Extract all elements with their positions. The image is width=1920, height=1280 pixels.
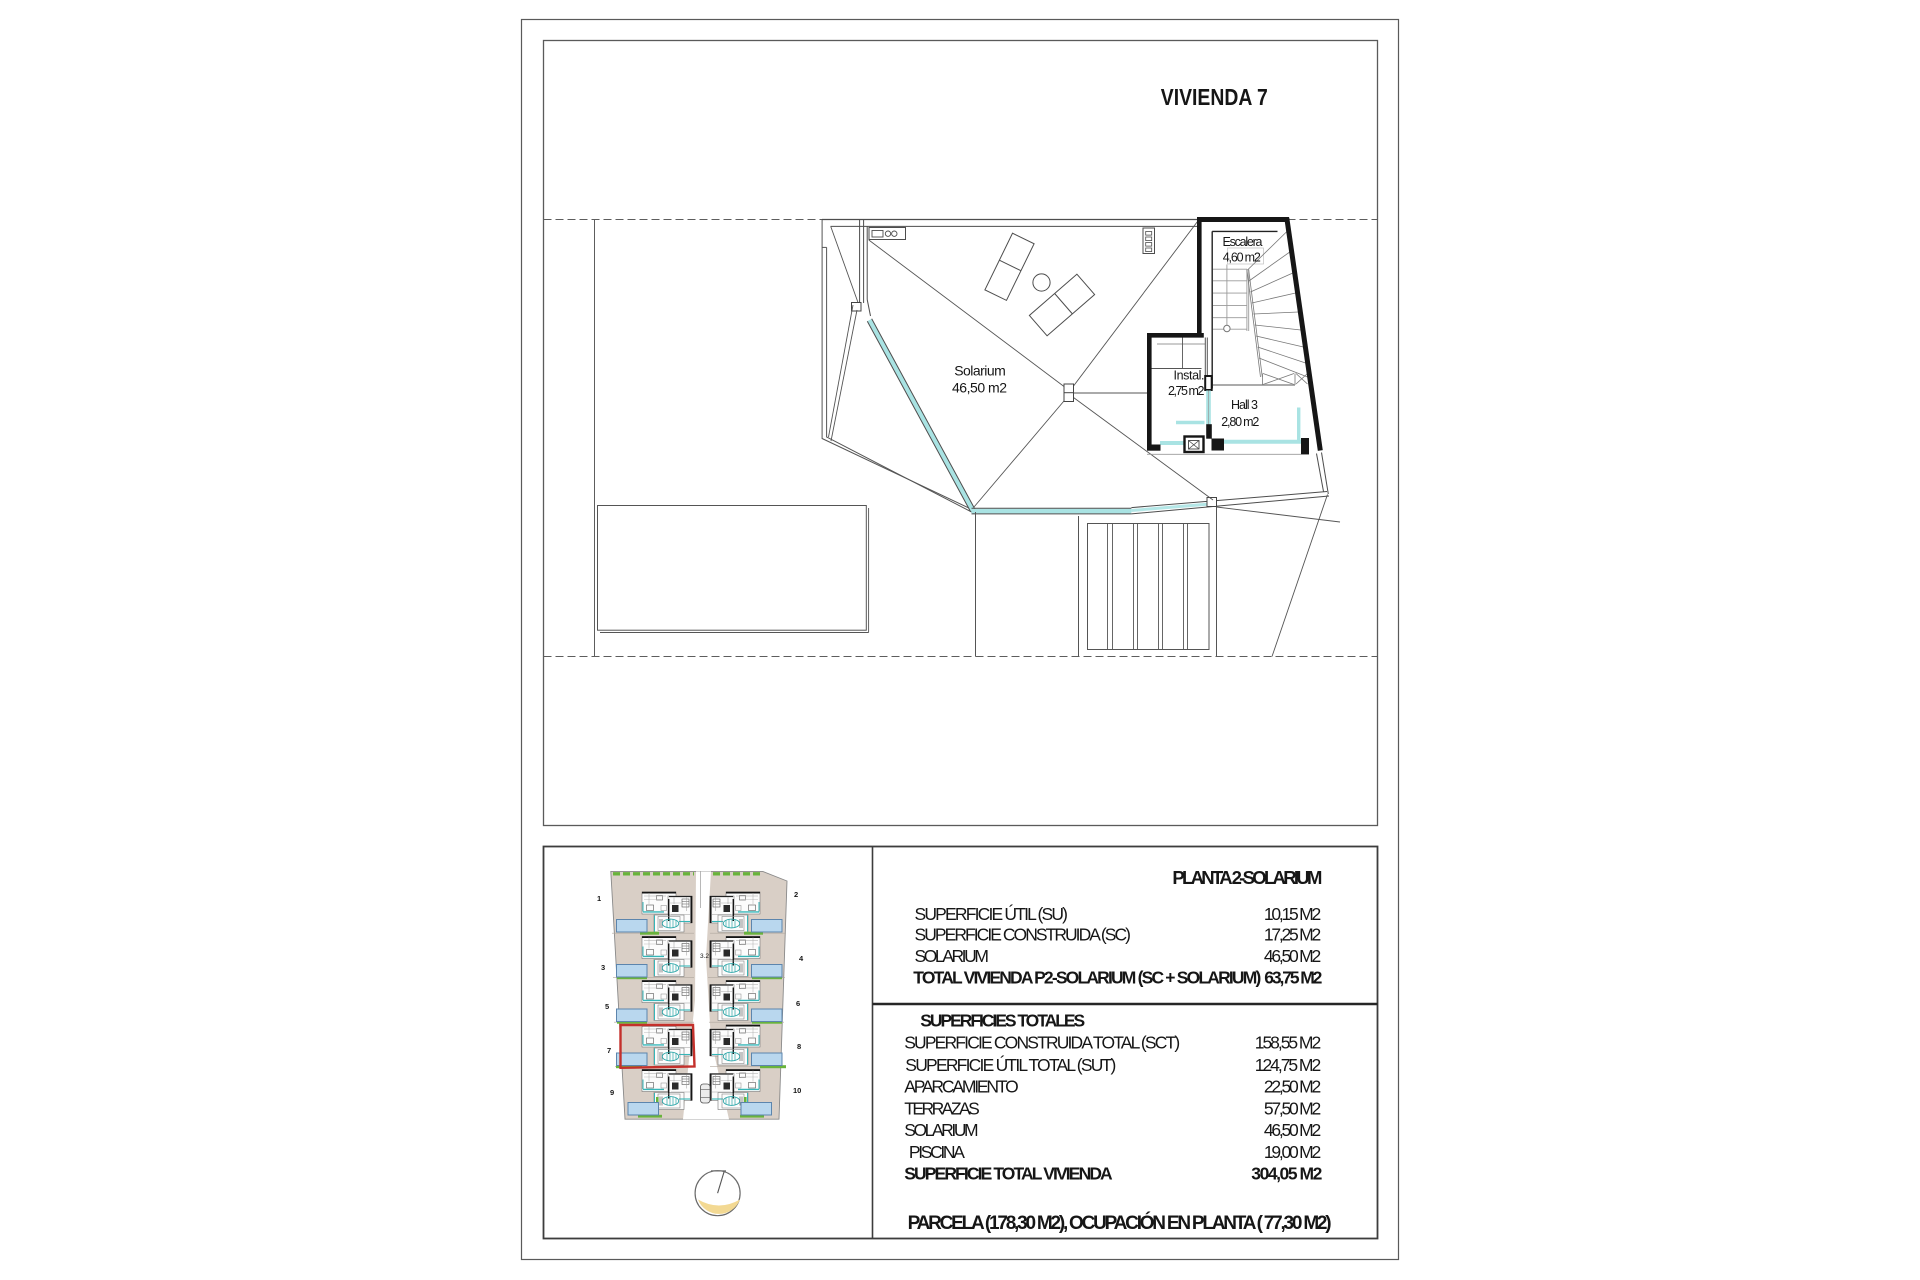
svg-text:PLANTA 2-SOLARIUM: PLANTA 2-SOLARIUM: [1172, 867, 1322, 888]
svg-text:63,75 M2: 63,75 M2: [1264, 968, 1322, 988]
svg-text:2,80 m2: 2,80 m2: [1221, 415, 1259, 429]
svg-text:8: 8: [797, 1042, 801, 1051]
svg-text:22,50 M2: 22,50 M2: [1264, 1077, 1321, 1097]
svg-text:APARCAMIENTO: APARCAMIENTO: [904, 1077, 1019, 1097]
svg-text:3.2: 3.2: [700, 953, 709, 960]
svg-text:158,55 M2: 158,55 M2: [1255, 1033, 1321, 1053]
svg-text:4,60 m2: 4,60 m2: [1223, 251, 1261, 265]
svg-text:SUPERFICIE ÚTIL TOTAL (SUT): SUPERFICIE ÚTIL TOTAL (SUT): [905, 1054, 1116, 1075]
svg-text:2: 2: [794, 890, 798, 899]
svg-text:SUPERFICIES TOTALES: SUPERFICIES TOTALES: [920, 1011, 1085, 1031]
svg-text:6: 6: [796, 999, 800, 1008]
svg-text:10: 10: [793, 1086, 801, 1095]
svg-text:VIVIENDA 7: VIVIENDA 7: [1161, 84, 1268, 110]
svg-text:SUPERFICIE ÚTIL (SU): SUPERFICIE ÚTIL (SU): [915, 903, 1069, 924]
svg-text:TERRAZAS: TERRAZAS: [904, 1098, 980, 1118]
svg-text:SUPERFICIE TOTAL VIVIENDA: SUPERFICIE TOTAL VIVIENDA: [904, 1164, 1113, 1184]
svg-text:Escalera: Escalera: [1223, 235, 1263, 249]
svg-text:SUPERFICIE CONSTRUIDA (SC): SUPERFICIE CONSTRUIDA (SC): [915, 925, 1132, 945]
svg-text:124,75 M2: 124,75 M2: [1255, 1055, 1321, 1075]
svg-text:PISCINA: PISCINA: [909, 1142, 965, 1162]
svg-text:3: 3: [601, 963, 605, 972]
svg-text:17,25 M2: 17,25 M2: [1264, 925, 1321, 945]
svg-text:46,50 M2: 46,50 M2: [1264, 946, 1321, 966]
svg-text:46,50 M2: 46,50 M2: [1264, 1120, 1321, 1140]
svg-text:4: 4: [799, 954, 804, 963]
svg-text:7: 7: [607, 1046, 611, 1055]
svg-text:Hall 3: Hall 3: [1231, 398, 1258, 412]
svg-text:46,50 m2: 46,50 m2: [952, 380, 1007, 396]
svg-text:2,75 m2: 2,75 m2: [1168, 384, 1205, 398]
svg-text:SOLARIUM: SOLARIUM: [904, 1120, 978, 1140]
svg-text:304,05 M2: 304,05 M2: [1251, 1164, 1322, 1184]
svg-text:PARCELA (178,30 M2), OCUPACIÓ: PARCELA (178,30 M2), OCUPACIÓN EN PLANTA…: [908, 1212, 1332, 1234]
svg-text:9: 9: [610, 1088, 614, 1097]
svg-text:SUPERFICIE CONSTRUIDA TOTAL (S: SUPERFICIE CONSTRUIDA TOTAL (SCT): [904, 1033, 1180, 1053]
svg-text:5: 5: [605, 1002, 609, 1011]
svg-text:Instal.: Instal.: [1174, 369, 1205, 383]
svg-text:1: 1: [597, 894, 601, 903]
svg-text:Solarium: Solarium: [954, 363, 1006, 379]
svg-text:10,15 M2: 10,15 M2: [1264, 904, 1321, 924]
svg-text:SOLARIUM: SOLARIUM: [915, 946, 989, 966]
svg-text:TOTAL VIVIENDA P2-SOLARIUM (SC: TOTAL VIVIENDA P2-SOLARIUM (SC + SOLARIU…: [913, 968, 1261, 988]
svg-text:57,50 M2: 57,50 M2: [1264, 1098, 1321, 1118]
svg-text:19,00 M2: 19,00 M2: [1264, 1142, 1321, 1162]
